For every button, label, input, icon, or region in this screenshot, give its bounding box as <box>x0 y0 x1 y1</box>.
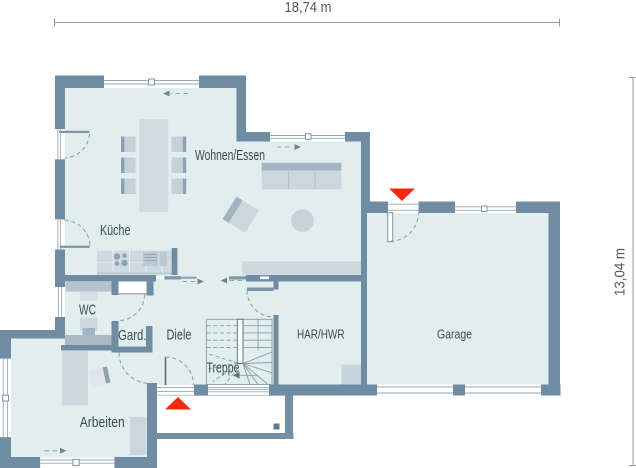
svg-text:Arbeiten: Arbeiten <box>80 415 125 431</box>
svg-text:HAR/HWR: HAR/HWR <box>297 327 345 342</box>
svg-text:18,74 m: 18,74 m <box>285 0 332 16</box>
svg-text:Treppe: Treppe <box>207 361 240 377</box>
svg-text:Garage: Garage <box>437 327 472 342</box>
svg-text:13,04 m: 13,04 m <box>613 248 629 296</box>
svg-text:Gard.: Gard. <box>118 328 147 344</box>
svg-text:WC: WC <box>79 303 96 319</box>
svg-text:Diele: Diele <box>167 328 192 344</box>
svg-text:Küche: Küche <box>100 223 131 239</box>
svg-text:Wohnen/Essen: Wohnen/Essen <box>195 148 265 164</box>
